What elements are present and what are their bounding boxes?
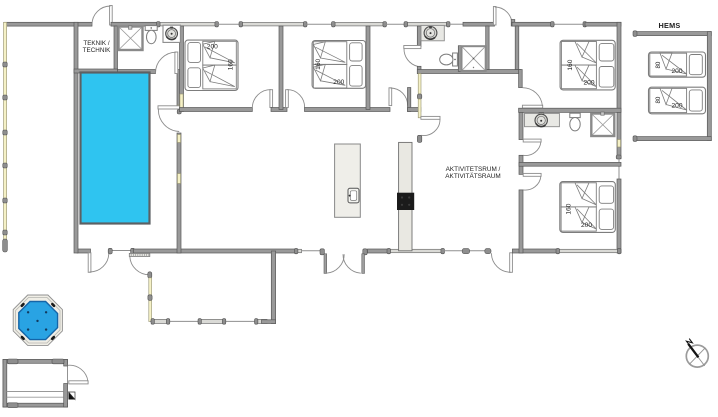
svg-text:160: 160 (566, 203, 573, 214)
svg-text:200: 200 (671, 68, 682, 75)
svg-text:80: 80 (655, 96, 662, 103)
svg-text:200: 200 (581, 222, 592, 229)
svg-text:HEMS: HEMS (659, 21, 681, 30)
svg-text:160: 160 (567, 59, 574, 70)
svg-text:200: 200 (671, 103, 682, 110)
svg-text:200: 200 (333, 79, 344, 86)
svg-text:160: 160 (315, 58, 322, 69)
svg-text:200: 200 (207, 44, 218, 51)
svg-text:160: 160 (227, 59, 234, 70)
svg-text:80: 80 (655, 61, 662, 68)
svg-text:TECHNIK: TECHNIK (83, 47, 111, 54)
svg-text:AKTIVITÄTSRAUM: AKTIVITÄTSRAUM (445, 172, 500, 180)
svg-text:200: 200 (583, 79, 594, 86)
